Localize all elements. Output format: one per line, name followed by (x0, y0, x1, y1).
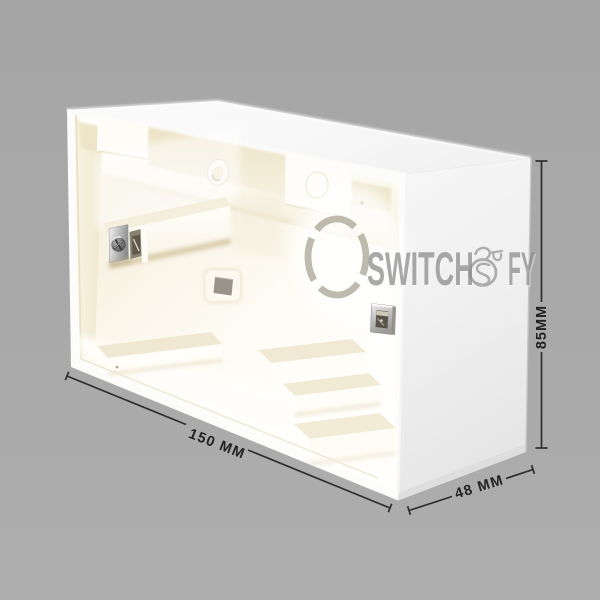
svg-text:FY: FY (508, 242, 535, 295)
svg-text:85MM: 85MM (534, 305, 550, 349)
svg-text:SWITCH: SWITCH (367, 243, 474, 296)
